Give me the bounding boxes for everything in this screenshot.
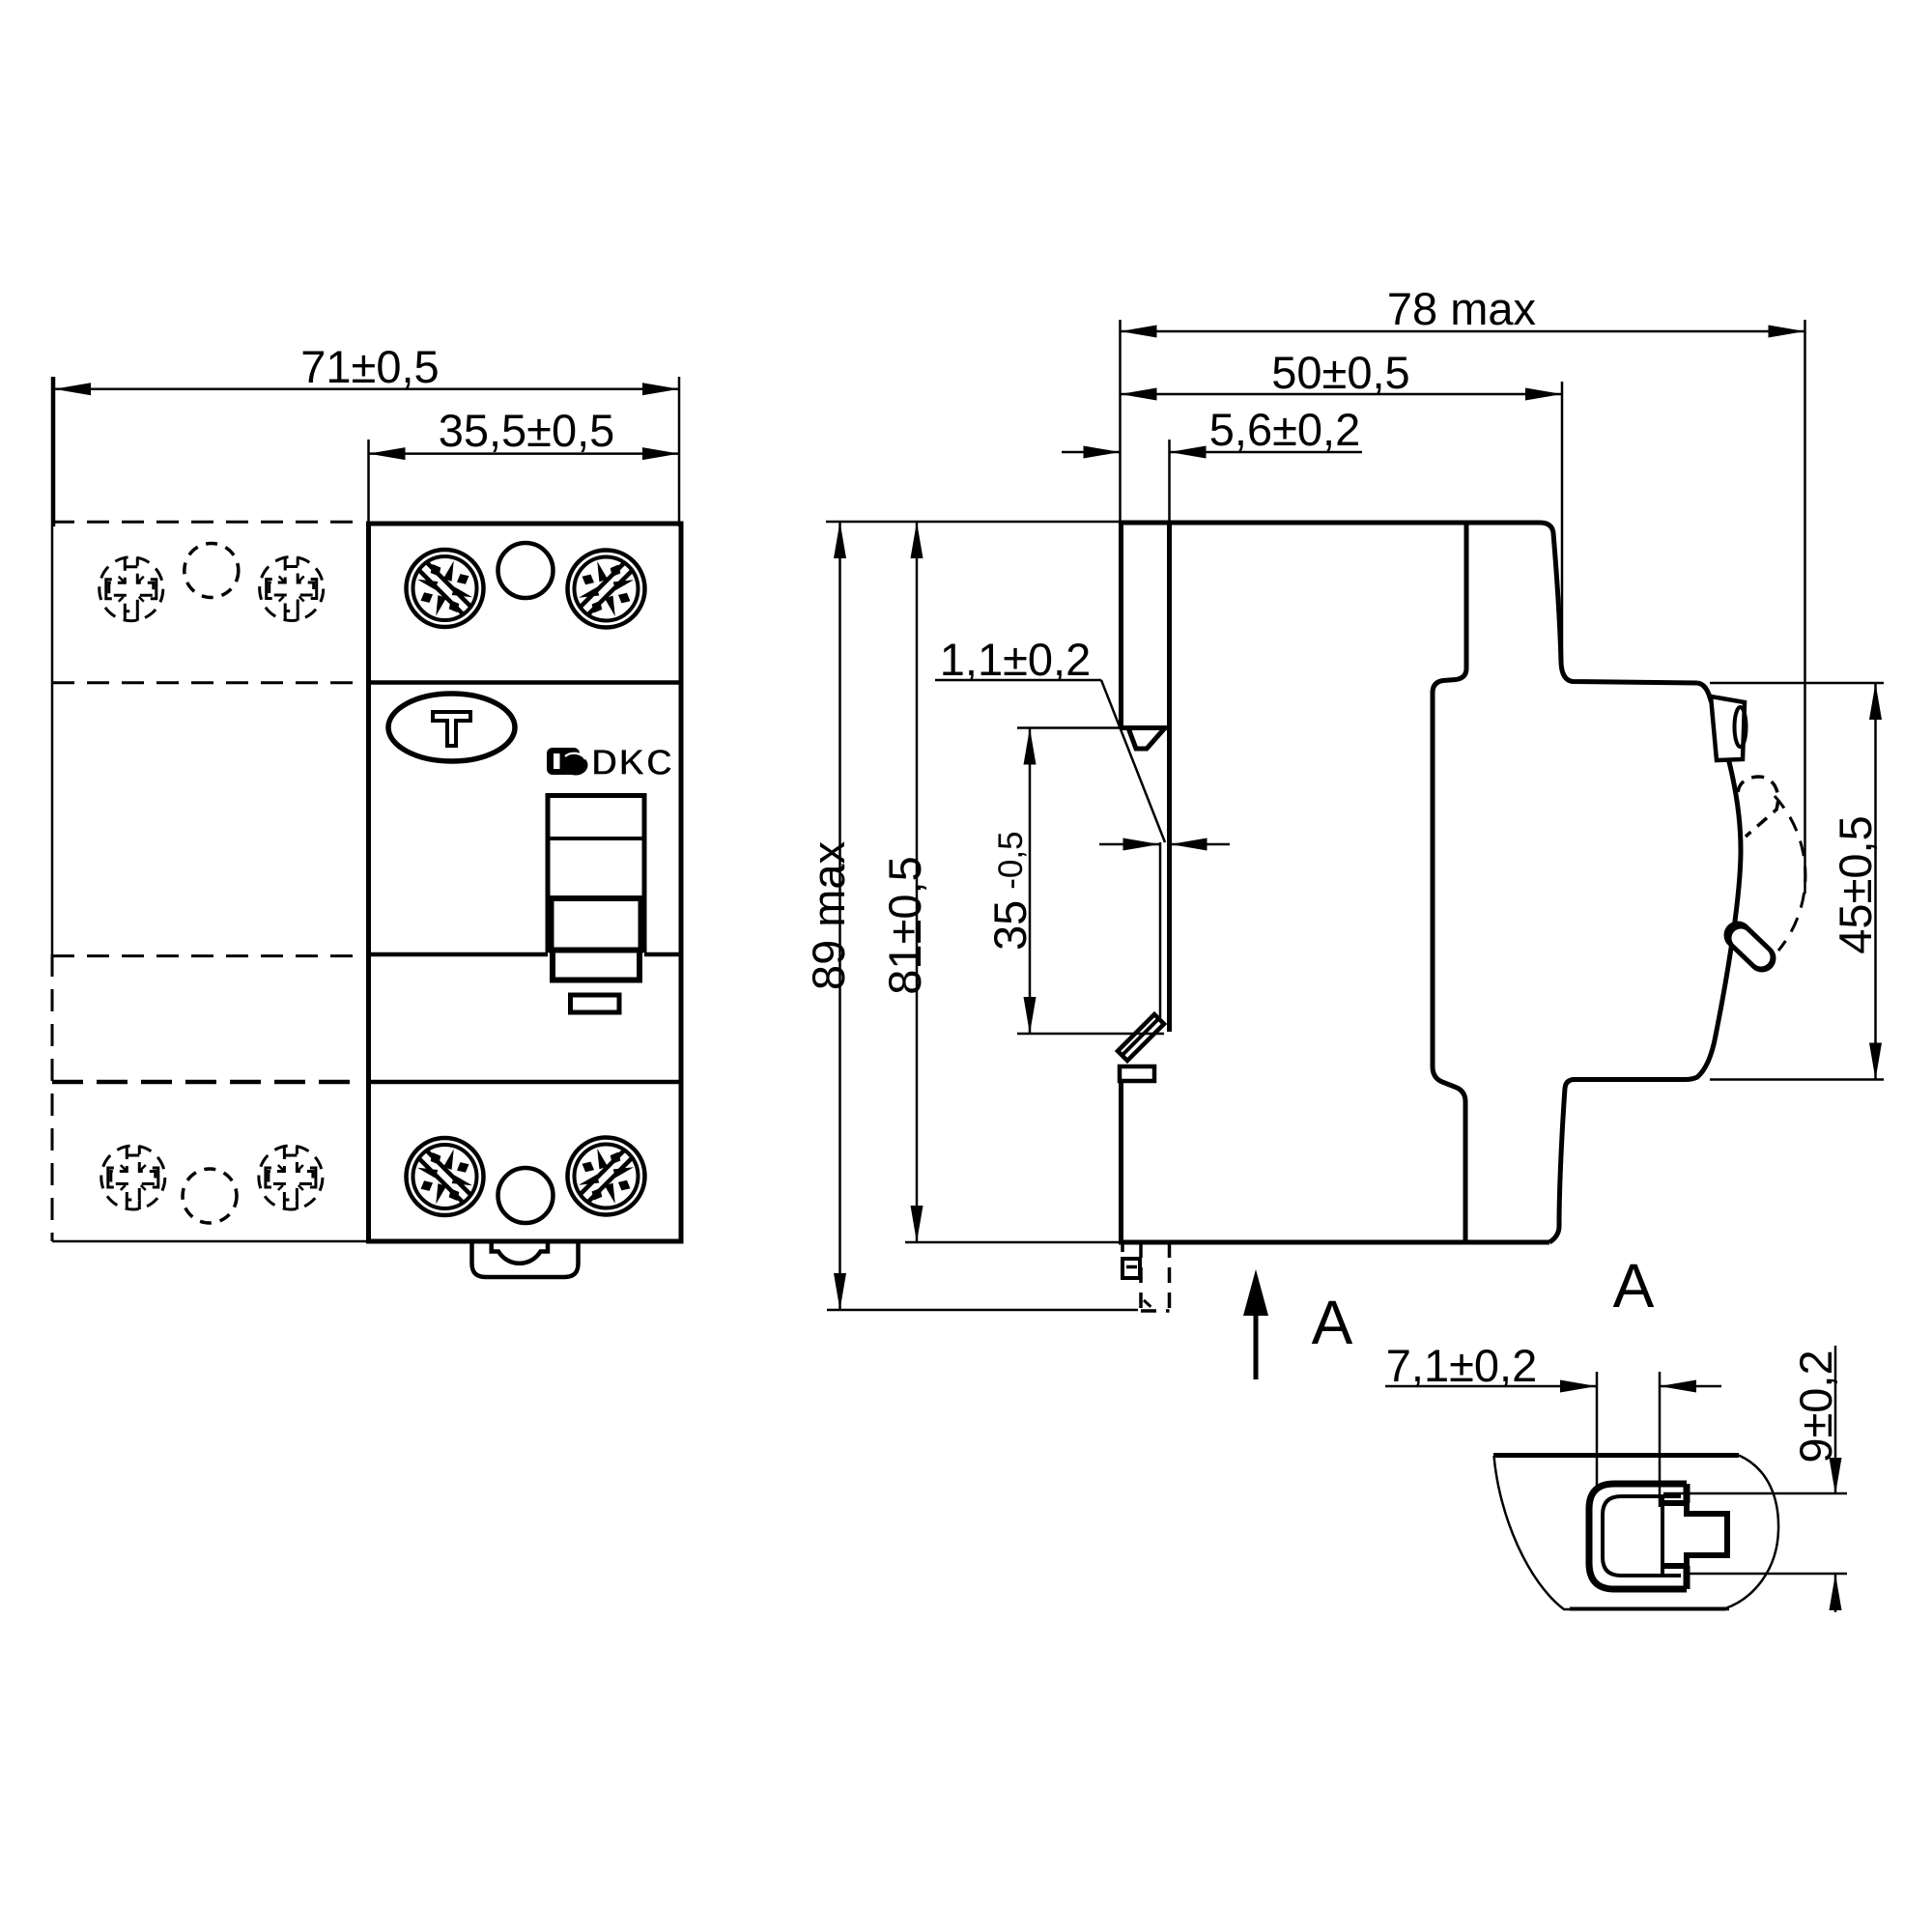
svg-text:A: A bbox=[1613, 1251, 1655, 1321]
svg-text:7,1±0,2: 7,1±0,2 bbox=[1386, 1340, 1537, 1391]
svg-text:50±0,5: 50±0,5 bbox=[1271, 347, 1409, 398]
svg-text:45±0,5: 45±0,5 bbox=[1830, 815, 1881, 953]
svg-text:5,6±0,2: 5,6±0,2 bbox=[1209, 404, 1360, 455]
svg-text:A: A bbox=[1312, 1288, 1353, 1357]
svg-text:DKC: DKC bbox=[591, 743, 673, 783]
svg-text:1,1±0,2: 1,1±0,2 bbox=[940, 634, 1091, 685]
svg-text:89 max: 89 max bbox=[803, 841, 854, 990]
svg-text:81±0,5: 81±0,5 bbox=[879, 856, 930, 994]
svg-text:71±0,5: 71±0,5 bbox=[300, 341, 439, 392]
svg-text:78 max: 78 max bbox=[1387, 283, 1536, 334]
svg-text:9±0,2: 9±0,2 bbox=[1790, 1350, 1841, 1463]
svg-text:35,5±0,5: 35,5±0,5 bbox=[439, 405, 615, 456]
